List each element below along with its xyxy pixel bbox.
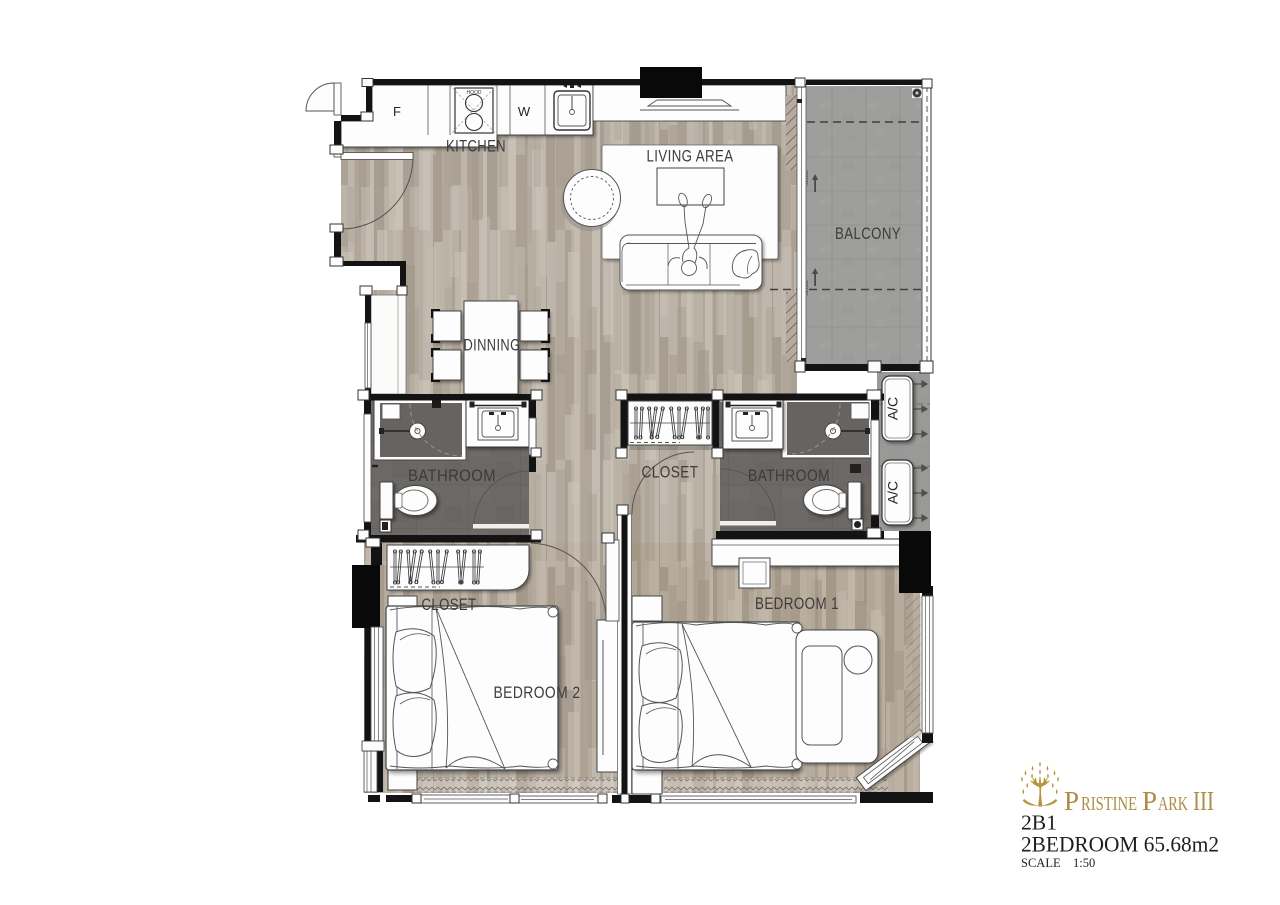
svg-text:P: P [1142,786,1157,816]
svg-text:SCALE: SCALE [1021,856,1061,870]
svg-text:P: P [1064,786,1079,816]
svg-text:BEDROOM 2: BEDROOM 2 [494,684,581,702]
svg-text:BALCONY: BALCONY [835,225,901,243]
svg-text:CLOSET: CLOSET [422,596,477,614]
svg-text:F: F [393,104,401,119]
svg-text:BATHROOM: BATHROOM [748,467,830,485]
svg-text:CLOSET: CLOSET [642,464,699,482]
svg-text:BEDROOM 1: BEDROOM 1 [755,595,839,613]
svg-text:ARK: ARK [1158,793,1188,815]
svg-text:W: W [518,104,531,119]
svg-text:RISTINE: RISTINE [1081,793,1137,815]
svg-text:DINNING: DINNING [464,337,521,355]
svg-text:KITCHEN: KITCHEN [446,138,506,156]
svg-text:LIVING AREA: LIVING AREA [647,148,734,166]
svg-text:III: III [1193,786,1214,816]
svg-text:A/C: A/C [885,397,901,420]
svg-text:1:50: 1:50 [1073,856,1095,870]
svg-text:A/C: A/C [885,481,901,504]
svg-text:HOOD: HOOD [467,90,482,96]
svg-text:BATHROOM: BATHROOM [408,467,496,485]
svg-text:2BEDROOM 65.68m2: 2BEDROOM 65.68m2 [1021,832,1219,857]
